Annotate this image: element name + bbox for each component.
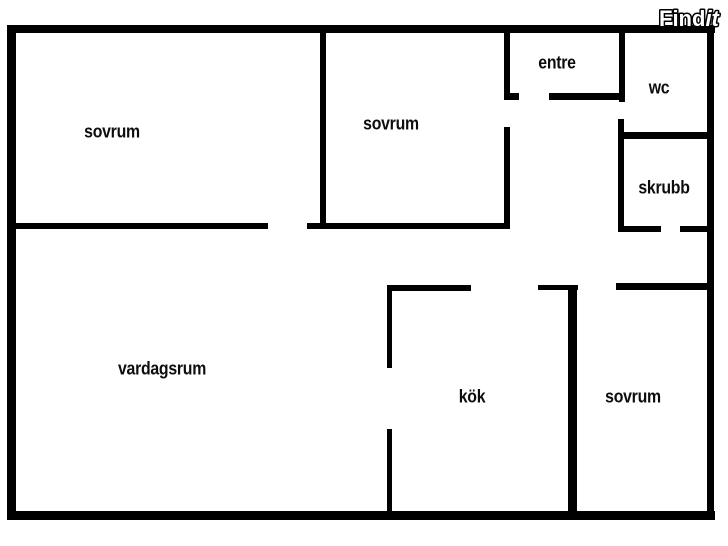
svg-text:Findit: Findit — [659, 6, 721, 31]
